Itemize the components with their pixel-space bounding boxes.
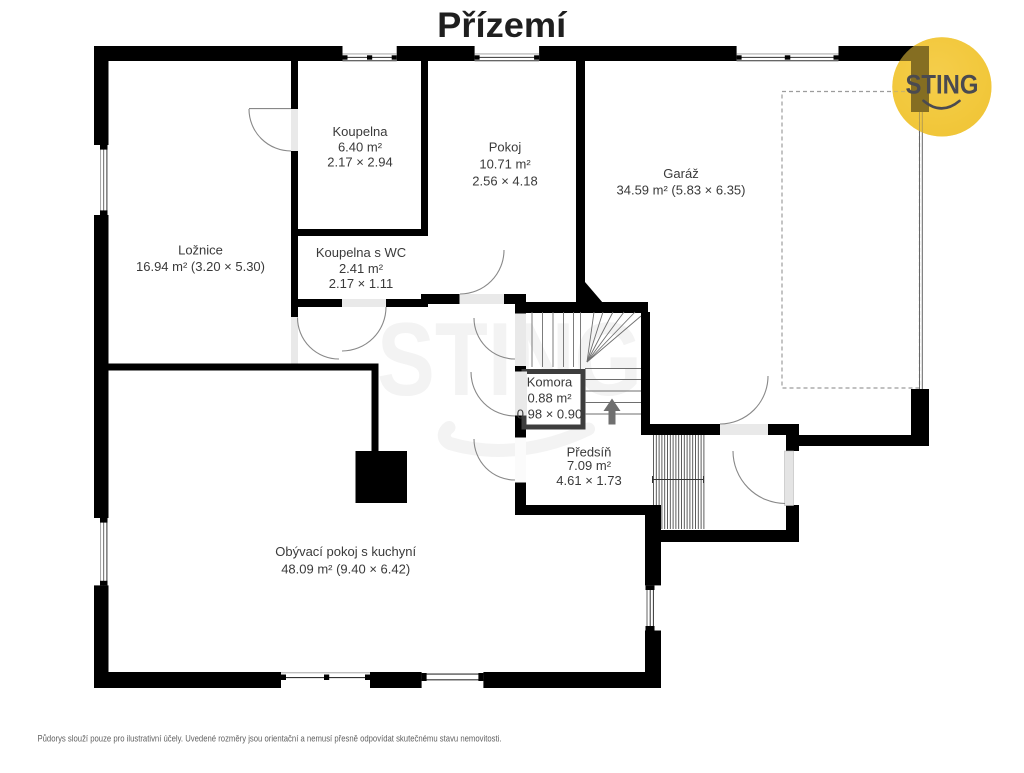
svg-text:10.71 m²: 10.71 m²	[479, 157, 531, 172]
svg-text:16.94 m² (3.20 × 5.30): 16.94 m² (3.20 × 5.30)	[136, 259, 265, 274]
svg-text:4.61 × 1.73: 4.61 × 1.73	[556, 473, 621, 488]
svg-text:Koupelna s WC: Koupelna s WC	[316, 245, 406, 260]
svg-text:2.17 × 2.94: 2.17 × 2.94	[327, 155, 392, 170]
svg-text:Obývací pokoj s kuchyní: Obývací pokoj s kuchyní	[275, 544, 416, 559]
svg-text:Pokoj: Pokoj	[489, 140, 522, 155]
svg-text:34.59 m² (5.83 × 6.35): 34.59 m² (5.83 × 6.35)	[617, 183, 746, 198]
svg-text:Půdorys slouží pouze pro ilust: Půdorys slouží pouze pro ilustrativní úč…	[38, 733, 502, 744]
svg-text:6.40 m²: 6.40 m²	[338, 140, 383, 155]
svg-text:48.09 m² (9.40 × 6.42): 48.09 m² (9.40 × 6.42)	[281, 561, 410, 576]
svg-text:STING: STING	[377, 302, 642, 418]
svg-text:Komora: Komora	[527, 375, 573, 390]
svg-text:Ložnice: Ložnice	[178, 243, 223, 258]
svg-text:Koupelna: Koupelna	[333, 124, 389, 139]
svg-text:Přízemí: Přízemí	[437, 6, 567, 45]
svg-text:2.41 m²: 2.41 m²	[339, 261, 384, 276]
svg-text:Garáž: Garáž	[663, 166, 698, 181]
svg-text:2.17 × 1.11: 2.17 × 1.11	[329, 276, 393, 291]
svg-text:0.98 × 0.90: 0.98 × 0.90	[517, 407, 582, 422]
svg-text:0.88 m²: 0.88 m²	[527, 391, 572, 406]
svg-text:2.56 × 4.18: 2.56 × 4.18	[472, 174, 537, 189]
svg-text:STING: STING	[906, 70, 979, 100]
svg-text:7.09 m²: 7.09 m²	[567, 458, 612, 473]
